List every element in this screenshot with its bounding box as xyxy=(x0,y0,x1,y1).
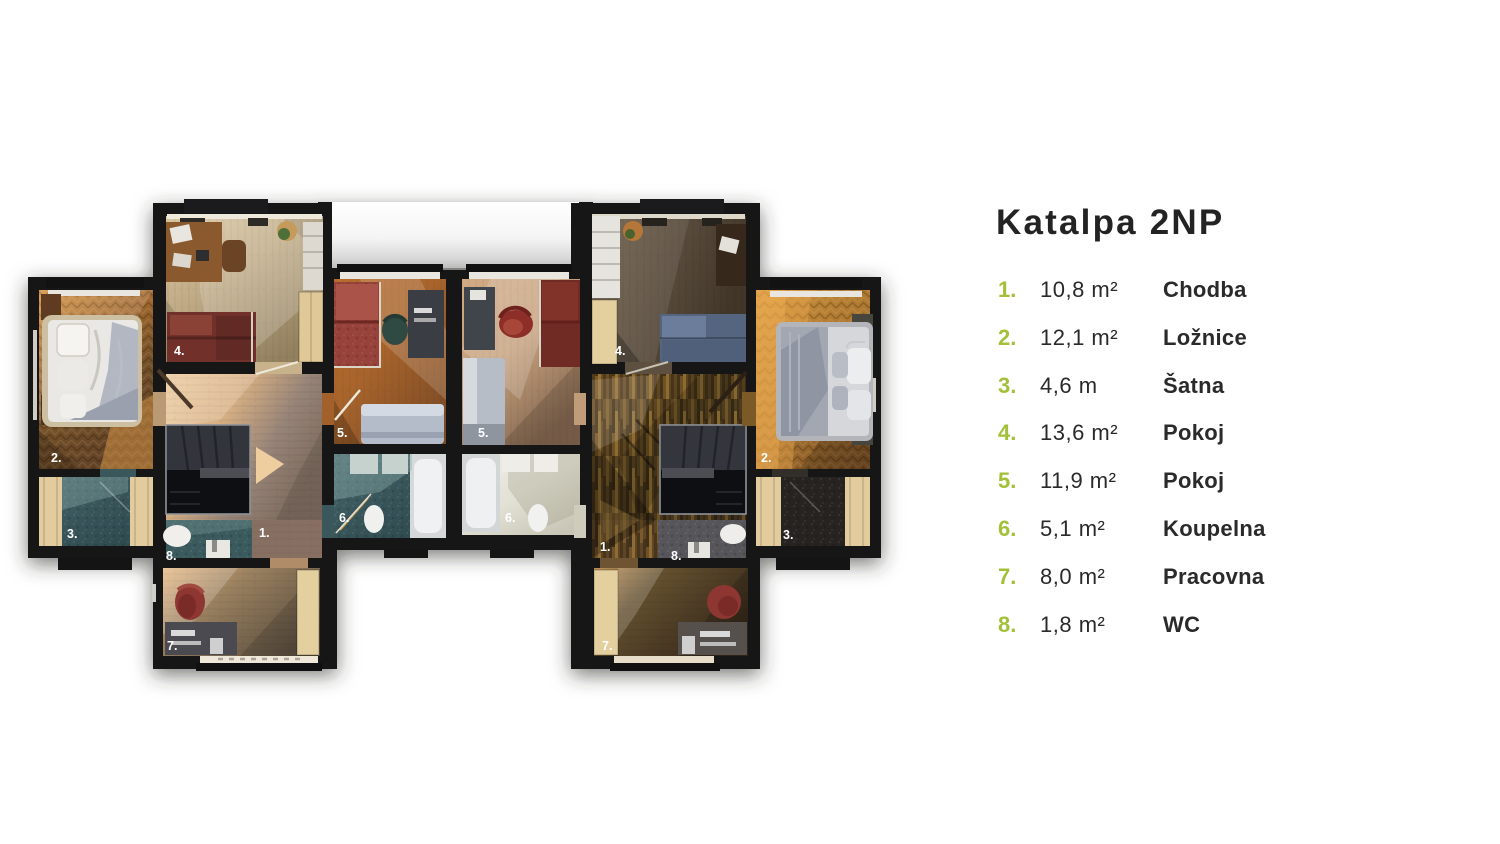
svg-text:7.: 7. xyxy=(602,639,612,653)
svg-text:1.: 1. xyxy=(259,526,269,540)
svg-text:6.: 6. xyxy=(505,511,515,525)
svg-text:8.: 8. xyxy=(671,549,681,563)
svg-text:5.: 5. xyxy=(337,426,347,440)
svg-text:2.: 2. xyxy=(761,451,771,465)
svg-text:7.: 7. xyxy=(167,639,177,653)
svg-text:3.: 3. xyxy=(783,528,793,542)
svg-text:2.: 2. xyxy=(51,451,61,465)
svg-text:6.: 6. xyxy=(339,511,349,525)
svg-text:4.: 4. xyxy=(615,344,625,358)
svg-text:4.: 4. xyxy=(174,344,184,358)
svg-text:1.: 1. xyxy=(600,540,610,554)
svg-text:8.: 8. xyxy=(166,549,176,563)
svg-text:5.: 5. xyxy=(478,426,488,440)
svg-text:3.: 3. xyxy=(67,527,77,541)
